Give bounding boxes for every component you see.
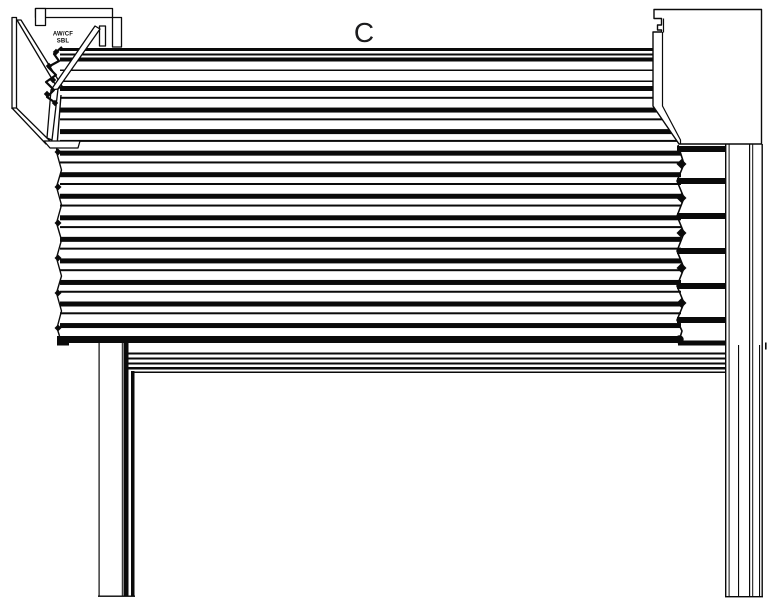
left-rail-second-bar	[131, 371, 135, 596]
slat-thick-line	[60, 237, 681, 242]
tick-mark	[765, 343, 767, 350]
slat-thick-line	[60, 129, 681, 134]
slat-thick-line	[60, 194, 681, 199]
bottom-bar-body	[57, 336, 679, 343]
bracket-lower-diagonal	[12, 108, 50, 144]
lintel-line	[127, 358, 725, 360]
hook-bar	[677, 317, 725, 323]
curtain-bottom-bar	[57, 335, 725, 345]
right-outer-edge-line	[762, 144, 763, 597]
slat-thick-line	[60, 258, 681, 263]
bracket-left-wall	[12, 18, 17, 109]
slat-thick-line	[60, 323, 681, 328]
bracket-right-tab	[113, 18, 122, 48]
left-rail-dark-bar	[124, 342, 129, 596]
hook-bar	[677, 283, 725, 289]
drawing-canvas: AW/CF SBL C	[0, 0, 779, 611]
bracket-top-bar	[36, 9, 113, 18]
right-rail-line-1	[725, 144, 726, 597]
mounting-bracket-assembly: AW/CF SBL	[12, 9, 122, 149]
slat-thin-line	[60, 118, 681, 120]
lintel-line	[134, 372, 725, 374]
slat-thin-line	[60, 140, 681, 142]
slat-thin-line	[60, 97, 681, 99]
slat-thin-line	[60, 312, 681, 314]
slat-thin-line	[60, 205, 681, 207]
slat-top-line	[60, 81, 681, 83]
hook-bar	[677, 178, 725, 184]
lintel-line	[127, 363, 725, 365]
bottom-bar-left-lip	[57, 343, 69, 346]
section-label: C	[354, 17, 374, 48]
bottom-bar-rail-step	[678, 341, 725, 346]
shutter-curtain-slats	[60, 48, 681, 328]
slat-thick-line	[60, 302, 681, 307]
hook-bar	[677, 213, 725, 219]
slat-thin-line	[60, 183, 681, 185]
slat-thick-line	[60, 108, 681, 113]
slat-thick-line	[60, 280, 681, 285]
slat-thick-line	[60, 172, 681, 177]
bracket-label-line1: AW/CF	[53, 32, 73, 38]
right-jamb-line-2	[759, 345, 760, 597]
lintel-lines	[127, 353, 725, 374]
roller-shutter-section-drawing: AW/CF SBL C	[0, 0, 779, 611]
slat-thick-line	[60, 86, 681, 91]
right-rail-line-4	[752, 144, 753, 597]
slat-thick-line	[60, 151, 681, 156]
slat-top-line	[60, 54, 681, 56]
lintel-line	[127, 367, 725, 370]
left-rail-outer-line	[99, 342, 100, 596]
frame-box-section	[653, 10, 762, 145]
hook-bar	[677, 146, 725, 152]
left-edge-knot	[55, 290, 62, 297]
right-rail-line-2	[729, 144, 730, 597]
left-edge-knot	[55, 220, 62, 227]
slat-thin-line	[60, 248, 681, 250]
frame-box-outline	[653, 10, 762, 145]
right-guide-rail	[725, 144, 767, 597]
slat-thin-line	[60, 269, 681, 271]
left-rail-bottom-cap	[98, 596, 135, 597]
left-guide-rail	[98, 342, 135, 597]
right-jamb-line-1	[738, 345, 739, 597]
bracket-foot	[44, 141, 80, 148]
right-edge-knot	[677, 228, 687, 238]
lintel-line	[127, 353, 725, 355]
left-rail-inner-line	[122, 342, 123, 596]
bracket-top-left-lug	[36, 9, 46, 26]
slat-thin-line	[60, 226, 681, 228]
bracket-label-line2: SBL	[57, 39, 70, 45]
slat-thick-line	[60, 215, 681, 220]
right-edge-knot	[677, 159, 687, 169]
right-rail-line-3	[749, 144, 750, 597]
slat-top-line	[60, 70, 681, 72]
right-rail-bottom-cap	[725, 596, 763, 597]
slat-top-line	[60, 58, 681, 62]
right-edge-knot	[677, 263, 687, 273]
slat-thin-line	[60, 291, 681, 293]
slat-top-line	[60, 48, 681, 51]
hook-bar	[677, 248, 725, 254]
slat-thin-line	[60, 161, 681, 163]
